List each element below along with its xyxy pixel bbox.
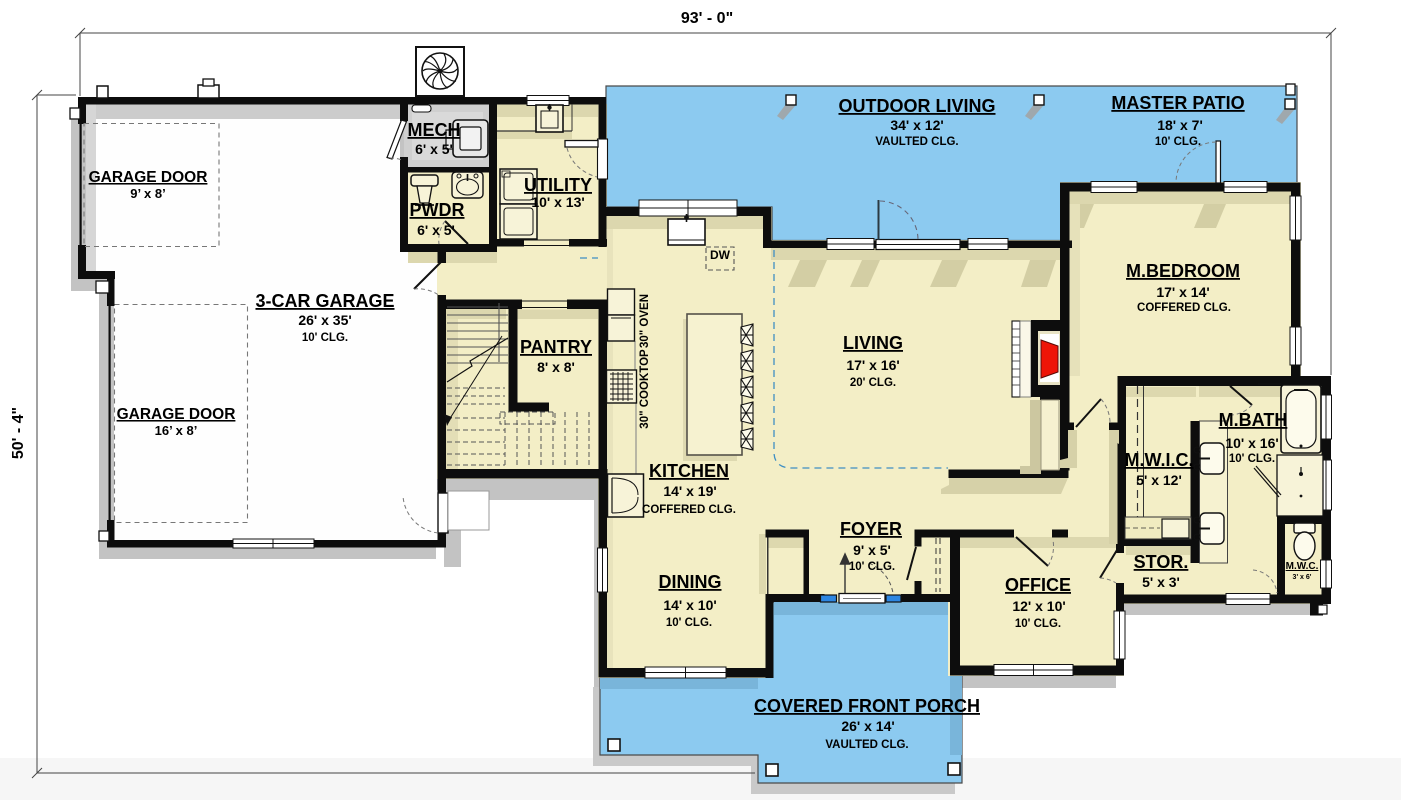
svg-text:STOR.: STOR.	[1134, 552, 1189, 572]
svg-text:18' x 7': 18' x 7'	[1157, 117, 1203, 133]
svg-text:10' x 16': 10' x 16'	[1225, 435, 1278, 451]
svg-text:KITCHEN: KITCHEN	[649, 461, 729, 481]
svg-text:16’ x 8’: 16’ x 8’	[155, 423, 198, 438]
svg-text:9’ x 8’: 9’ x 8’	[130, 186, 165, 201]
svg-text:10' CLG.: 10' CLG.	[849, 561, 895, 573]
svg-text:COFFERED CLG.: COFFERED CLG.	[642, 504, 736, 516]
svg-text:6' x 5': 6' x 5'	[415, 141, 453, 157]
svg-text:12' x 10': 12' x 10'	[1012, 598, 1065, 614]
svg-text:30" OVEN: 30" OVEN	[639, 294, 651, 348]
svg-text:DINING: DINING	[659, 572, 722, 592]
svg-text:3' x 6': 3' x 6'	[1293, 574, 1312, 581]
svg-text:14' x 19': 14' x 19'	[663, 483, 716, 499]
svg-text:COVERED FRONT PORCH: COVERED FRONT PORCH	[754, 696, 980, 716]
svg-text:93' - 0": 93' - 0"	[681, 10, 733, 27]
svg-text:M.BEDROOM: M.BEDROOM	[1126, 261, 1240, 281]
svg-text:MECH: MECH	[408, 120, 461, 140]
svg-text:14' x 10': 14' x 10'	[663, 597, 716, 613]
svg-text:VAULTED CLG.: VAULTED CLG.	[825, 739, 908, 751]
svg-text:30" COOKTOP: 30" COOKTOP	[639, 349, 651, 429]
svg-text:26' x 14': 26' x 14'	[841, 718, 894, 734]
svg-text:UTILITY: UTILITY	[524, 175, 592, 195]
svg-text:17' x 14': 17' x 14'	[1156, 284, 1209, 300]
svg-text:5' x 12': 5' x 12'	[1136, 472, 1182, 488]
svg-text:PANTRY: PANTRY	[520, 337, 592, 357]
svg-text:FOYER: FOYER	[840, 519, 902, 539]
svg-text:LIVING: LIVING	[843, 333, 903, 353]
svg-text:OUTDOOR LIVING: OUTDOOR LIVING	[839, 96, 996, 116]
svg-text:10' CLG.: 10' CLG.	[1015, 618, 1061, 630]
svg-text:9' x 5': 9' x 5'	[853, 542, 891, 558]
svg-text:10' CLG.: 10' CLG.	[1155, 136, 1201, 148]
svg-text:M.W.I.C.: M.W.I.C.	[1125, 450, 1194, 470]
svg-text:34' x 12': 34' x 12'	[890, 117, 943, 133]
svg-text:50' - 4": 50' - 4"	[10, 407, 27, 459]
svg-text:OFFICE: OFFICE	[1005, 575, 1071, 595]
svg-text:MASTER PATIO: MASTER PATIO	[1111, 93, 1244, 113]
svg-text:10' CLG.: 10' CLG.	[302, 332, 348, 344]
svg-text:DW: DW	[710, 248, 731, 262]
svg-text:VAULTED CLG.: VAULTED CLG.	[875, 136, 958, 148]
svg-text:GARAGE DOOR: GARAGE DOOR	[89, 169, 208, 186]
svg-text:26' x 35': 26' x 35'	[298, 312, 351, 328]
svg-text:10' CLG.: 10' CLG.	[1229, 453, 1275, 465]
svg-text:20' CLG.: 20' CLG.	[850, 377, 896, 389]
svg-text:17' x 16': 17' x 16'	[846, 357, 899, 373]
svg-text:10' x 13': 10' x 13'	[531, 194, 584, 210]
svg-text:GARAGE DOOR: GARAGE DOOR	[117, 406, 236, 423]
svg-text:6' x 5': 6' x 5'	[417, 222, 455, 238]
svg-text:3-CAR GARAGE: 3-CAR GARAGE	[255, 291, 394, 311]
svg-text:8' x 8': 8' x 8'	[537, 359, 575, 375]
svg-text:5' x 3': 5' x 3'	[1142, 574, 1180, 590]
svg-text:M.W.C.: M.W.C.	[1286, 561, 1319, 572]
svg-text:10' CLG.: 10' CLG.	[666, 617, 712, 629]
svg-text:PWDR: PWDR	[410, 200, 465, 220]
svg-text:COFFERED CLG.: COFFERED CLG.	[1137, 302, 1231, 314]
svg-text:M.BATH: M.BATH	[1219, 410, 1288, 430]
